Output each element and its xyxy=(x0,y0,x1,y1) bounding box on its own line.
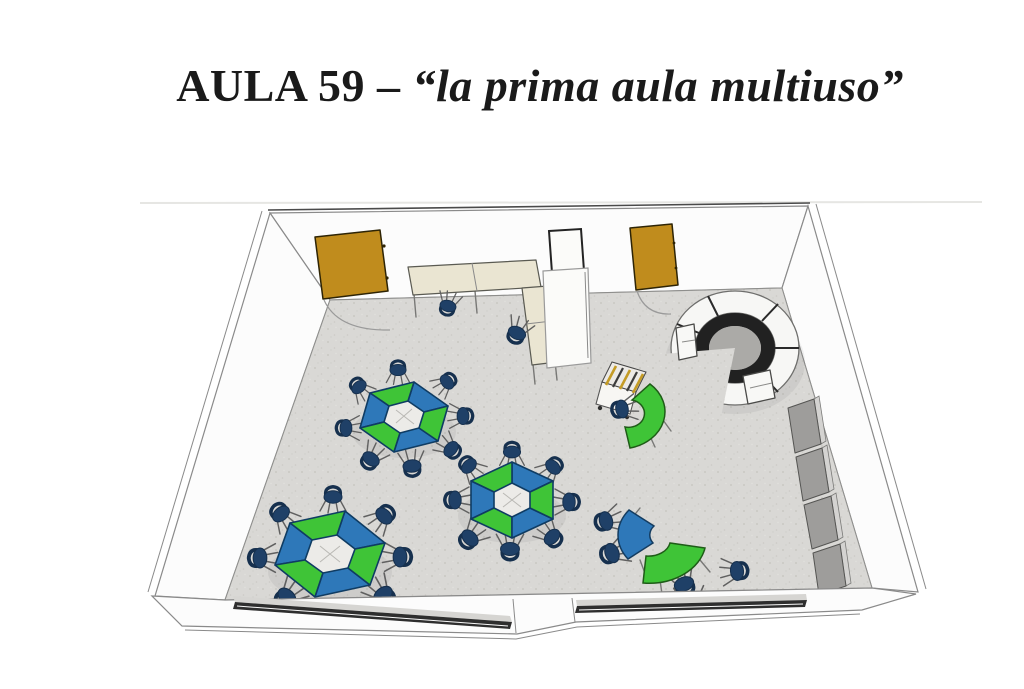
classroom-render xyxy=(0,0,1024,689)
image-top-edge xyxy=(140,202,982,203)
gray-cabinet-4 xyxy=(813,544,846,595)
door-hinge-icon xyxy=(675,267,678,270)
door-hinge-icon xyxy=(382,244,385,247)
tall-cabinet-body xyxy=(543,268,591,368)
door-hinge-icon xyxy=(385,276,388,279)
door-left-leaf xyxy=(315,230,388,299)
door-right-leaf xyxy=(630,224,678,290)
tall-cabinet-upper xyxy=(549,229,584,273)
booth-shelf-cap xyxy=(743,370,775,404)
door-hinge-icon xyxy=(673,242,676,245)
booth-shelf-cap xyxy=(676,324,697,360)
cart-wheel xyxy=(598,406,602,410)
